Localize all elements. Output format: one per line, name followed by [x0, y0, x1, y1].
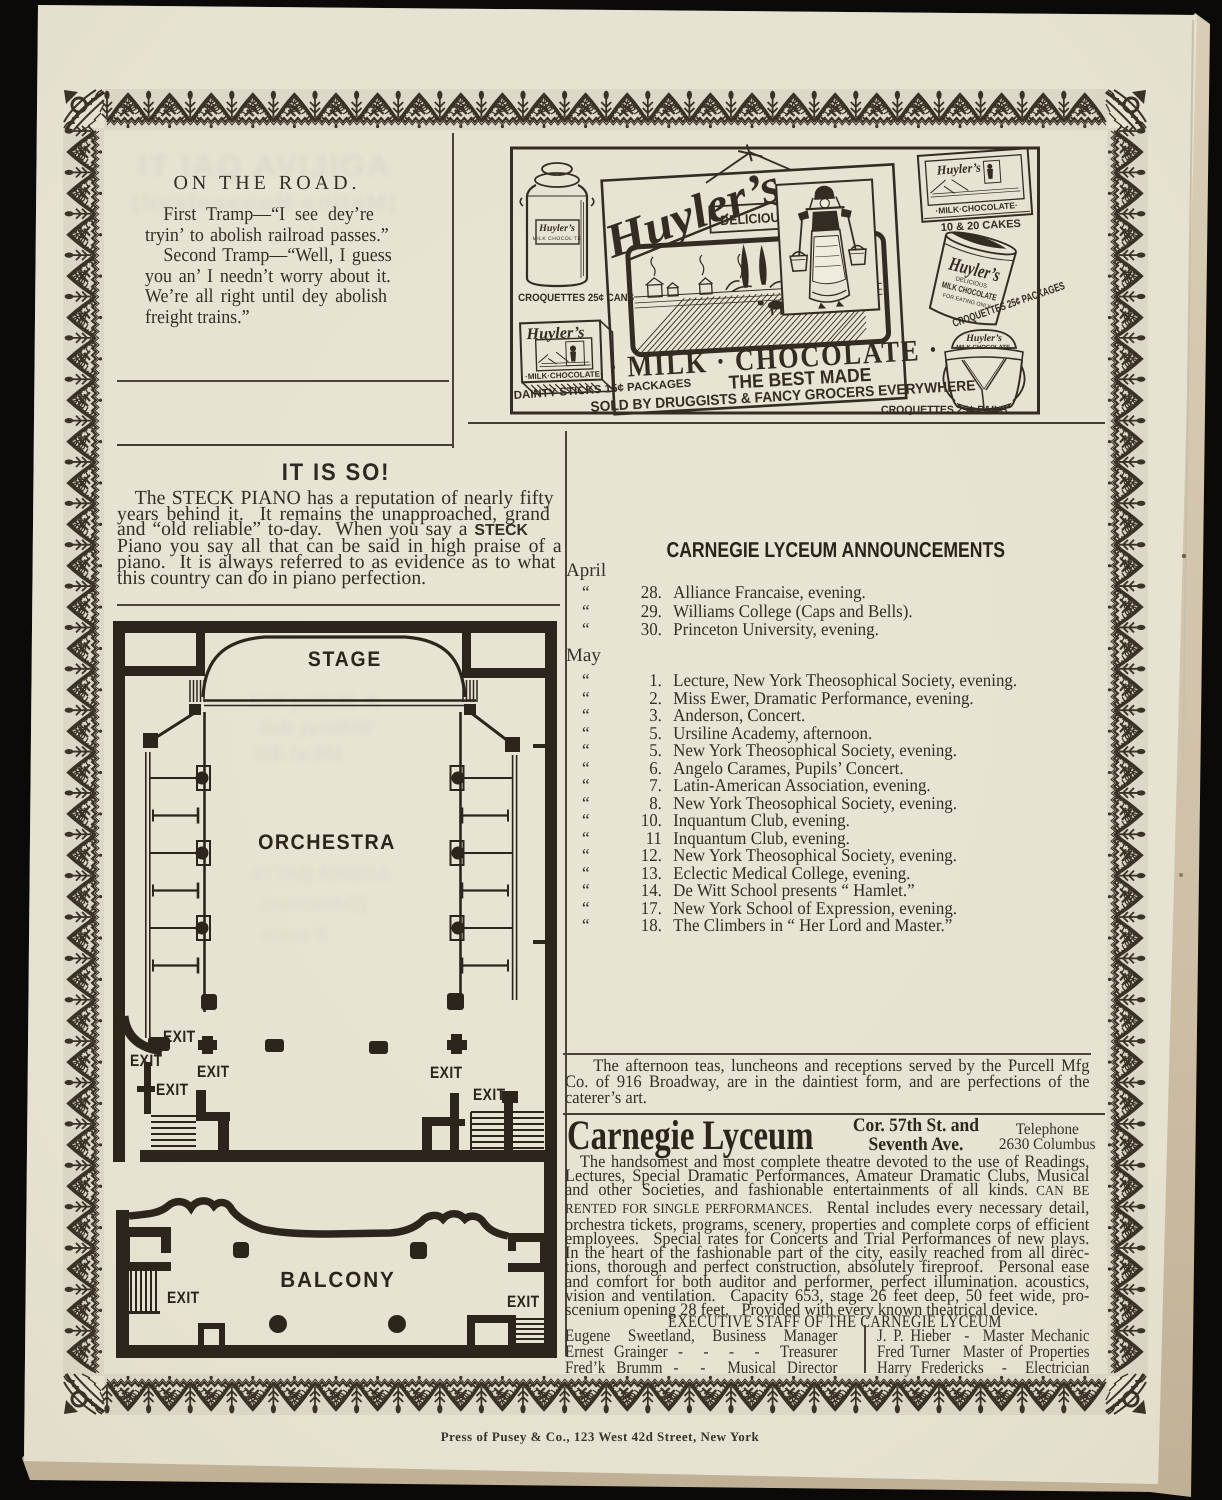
- svg-text:MILK CHOCOLATE.: MILK CHOCOLATE.: [956, 344, 1012, 351]
- svg-text:MILK CHOCOL'TE: MILK CHOCOL'TE: [533, 236, 582, 242]
- svg-text:Huyler’s: Huyler’s: [525, 324, 585, 343]
- svg-text:Huyler’s: Huyler’s: [538, 223, 575, 234]
- svg-text:Huyler’s: Huyler’s: [935, 160, 981, 178]
- svg-text:CROQUETTES 25¢ PAILS: CROQUETTES 25¢ PAILS: [881, 404, 1007, 416]
- svg-text:CROQUETTES 25¢ CANS: CROQUETTES 25¢ CANS: [518, 292, 634, 304]
- svg-text:Huyler’s: Huyler’s: [965, 333, 1002, 344]
- svg-text:·MILK·CHOCOLATE·: ·MILK·CHOCOLATE·: [935, 200, 1018, 216]
